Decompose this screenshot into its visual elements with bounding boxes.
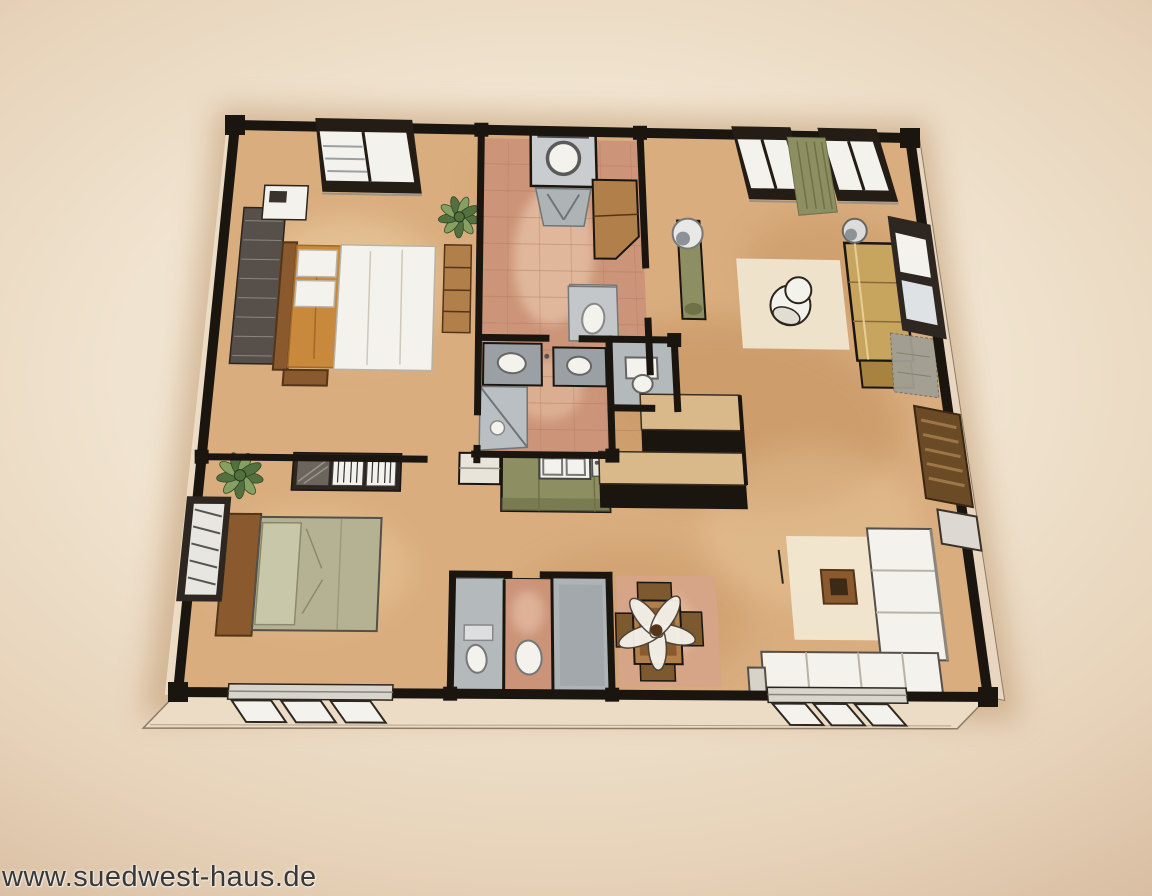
shower-drain [490,421,504,435]
plant-center [234,470,245,481]
wall-post [195,450,209,464]
interior-wall [674,340,678,409]
coat-stand-base [684,303,702,315]
interior-wall [202,457,424,459]
wall-post [474,123,488,137]
wall-post [633,126,647,140]
blind-line [325,158,365,159]
tall-shelf [442,245,471,333]
sill-line [768,695,907,696]
wall-post [667,333,681,347]
bar-counter-upper [640,394,742,431]
window-sill [838,203,899,204]
interior-wall [504,581,505,688]
books-panel [332,458,364,485]
interior-wall [478,130,482,412]
sofa-cushion-line [853,321,908,322]
top-wall-window [315,118,422,195]
blind-line [327,171,367,172]
wall-window-glass [902,280,938,325]
rug-stripe [234,336,273,337]
interior-wall [479,337,546,338]
foot-bench [283,370,328,386]
wall-post [605,449,619,463]
sofa-cushion-line [849,282,904,283]
armchair-back [785,277,811,303]
faucet [544,354,549,359]
interior-wall [609,339,612,455]
rug-stripe [245,221,283,222]
wall-post [443,687,457,701]
pillow [297,250,338,277]
counter-shade [501,498,610,512]
rug-stripe [241,259,279,260]
wall-post [900,128,920,148]
interior-wall [552,576,553,689]
room-bedroom-2 [216,451,402,635]
toilet-bowl [633,375,653,393]
blind-line [323,146,362,147]
burner [595,461,599,465]
washing-machine-door [547,142,579,174]
shower-tray [559,585,605,687]
rug-stripe [238,298,277,299]
floor-plan-canvas [0,0,1152,896]
toilet-tank [464,625,493,641]
rug-stripe [240,278,278,279]
room-dining [616,575,722,687]
pillow [294,280,335,307]
wall-post [605,688,619,702]
bottom-wall-window [767,687,908,725]
floor-lamp-shade [845,229,857,241]
room-bathroom-bottom [452,576,611,692]
interior-wall [475,454,613,456]
picture-frame [937,510,981,551]
cushion-line [876,612,942,613]
flower-center [650,624,662,636]
rug-stripe [232,355,271,356]
interior-wall [582,339,674,340]
rug-stripe [243,240,281,241]
wall-post [168,682,188,702]
interior-wall [648,321,650,372]
dining-chair [637,582,672,601]
books-panel [366,459,396,487]
rug-stripe [236,317,275,318]
watermark-url: www.suedwest-haus.de [2,861,317,894]
laundry-chair [536,188,591,226]
interior-wall [609,575,612,693]
floor-plan-illustration: www.suedwest-haus.de [0,0,1152,896]
bottom-wall-window [228,684,393,723]
pillow [255,523,302,625]
bar-counter-lower [599,452,746,486]
tile-wash [512,590,544,634]
nightstand-lamp [269,191,287,203]
interior-wall [450,574,452,693]
cushion-line [871,570,936,571]
white-duvet [334,245,436,371]
gray-rug [890,333,939,398]
plant-center [454,212,464,222]
lamp-shade [676,232,690,246]
bar-counter-lower-face [600,482,748,509]
sill-line [228,691,392,692]
coffee-table-center [829,578,848,595]
wall-post [978,687,998,707]
wall-post [225,115,245,135]
